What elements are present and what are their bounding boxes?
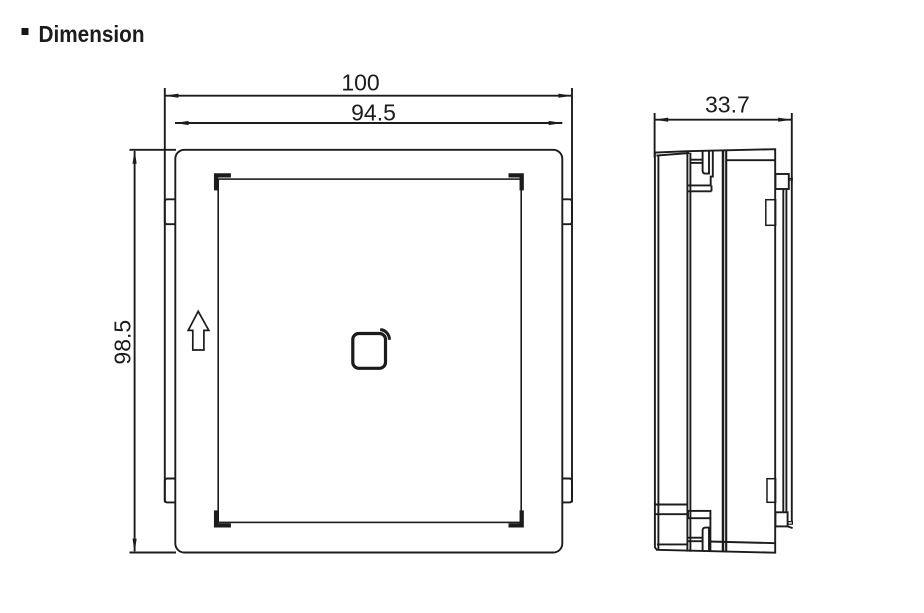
- svg-text:98.5: 98.5: [110, 320, 136, 365]
- svg-text:33.7: 33.7: [705, 91, 750, 117]
- svg-text:100: 100: [341, 70, 379, 96]
- svg-text:Dimension: Dimension: [39, 21, 145, 47]
- svg-text:94.5: 94.5: [351, 99, 396, 125]
